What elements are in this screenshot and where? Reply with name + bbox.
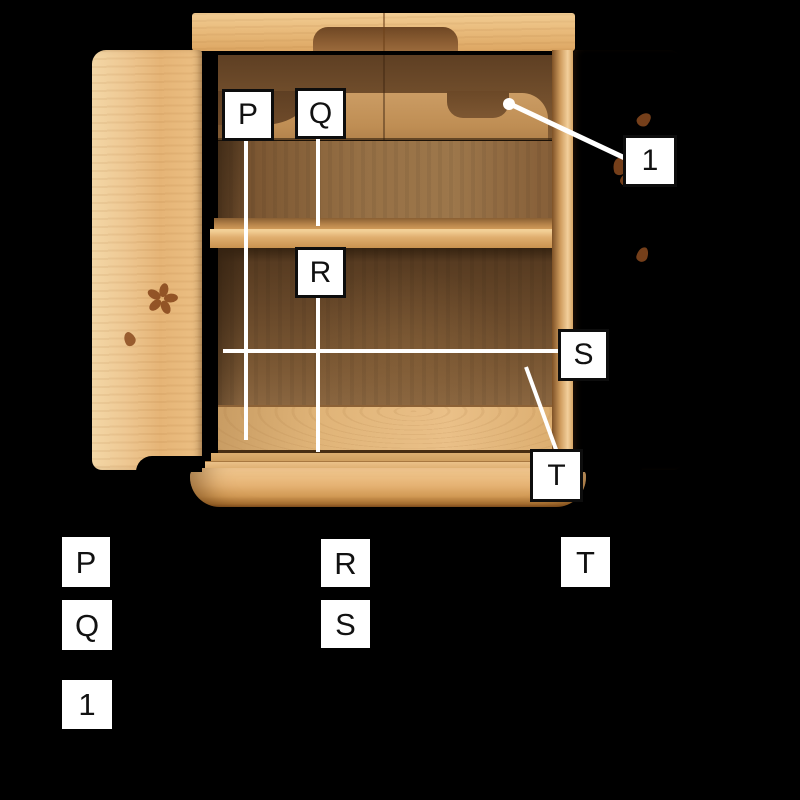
frame-pillar-right bbox=[552, 50, 573, 470]
marker-box-t: T bbox=[530, 449, 583, 502]
left-door bbox=[92, 50, 202, 470]
cabinet-base-plinth bbox=[190, 468, 586, 507]
crown-center-split bbox=[383, 13, 385, 51]
right-door bbox=[573, 50, 683, 470]
measure-line-p bbox=[244, 140, 248, 440]
cabinet-floor bbox=[218, 405, 555, 450]
marker-label-p: P bbox=[238, 100, 258, 130]
marker-label-1: 1 bbox=[642, 146, 659, 176]
legend-label-q: Q bbox=[75, 610, 99, 641]
marker-label-s: S bbox=[573, 340, 593, 370]
upper-compartment-back bbox=[218, 141, 554, 218]
valance-center-split bbox=[383, 55, 385, 140]
sakura-inlay bbox=[145, 282, 179, 316]
marker-box-1: 1 bbox=[623, 135, 677, 187]
legend-box-p: P bbox=[62, 537, 110, 587]
left-door-bottom-notch bbox=[136, 456, 202, 472]
legend-label-s: S bbox=[335, 609, 356, 640]
legend-label-1: 1 bbox=[78, 689, 95, 720]
lower-compartment-back bbox=[218, 248, 554, 405]
marker-box-s: S bbox=[558, 329, 609, 381]
legend-label-t: T bbox=[576, 547, 595, 578]
legend-box-t: T bbox=[561, 537, 610, 587]
shelf-top-surface bbox=[214, 218, 558, 229]
marker-label-q: Q bbox=[309, 99, 332, 129]
legend-box-r: R bbox=[321, 539, 370, 587]
upper-compartment-side-shadow bbox=[218, 141, 246, 218]
measure-line-q bbox=[316, 138, 320, 226]
pointer-dot-1 bbox=[503, 98, 515, 110]
measure-line-s bbox=[223, 349, 558, 353]
legend-box-1: 1 bbox=[62, 680, 112, 729]
legend-label-r: R bbox=[334, 548, 356, 579]
frame-pillar-left bbox=[203, 50, 219, 470]
legend-label-p: P bbox=[76, 547, 97, 578]
shelf-front-edge bbox=[210, 229, 560, 248]
valance-cloud-notch bbox=[447, 91, 509, 118]
marker-box-q: Q bbox=[295, 88, 346, 139]
marker-label-r: R bbox=[310, 258, 332, 288]
cabinet-crown-board bbox=[192, 13, 575, 51]
floor-step-mid bbox=[211, 453, 562, 461]
marker-box-p: P bbox=[222, 89, 274, 141]
marker-box-r: R bbox=[295, 247, 346, 298]
legend-box-q: Q bbox=[62, 600, 112, 650]
measure-line-r bbox=[316, 297, 320, 452]
legend-box-s: S bbox=[321, 600, 370, 648]
diagram-canvas: P Q R S T 1 P Q 1 R S T bbox=[0, 0, 800, 800]
marker-label-t: T bbox=[547, 461, 565, 491]
shelf-under-shadow bbox=[218, 248, 554, 262]
lower-compartment-side-shadow bbox=[218, 248, 244, 405]
